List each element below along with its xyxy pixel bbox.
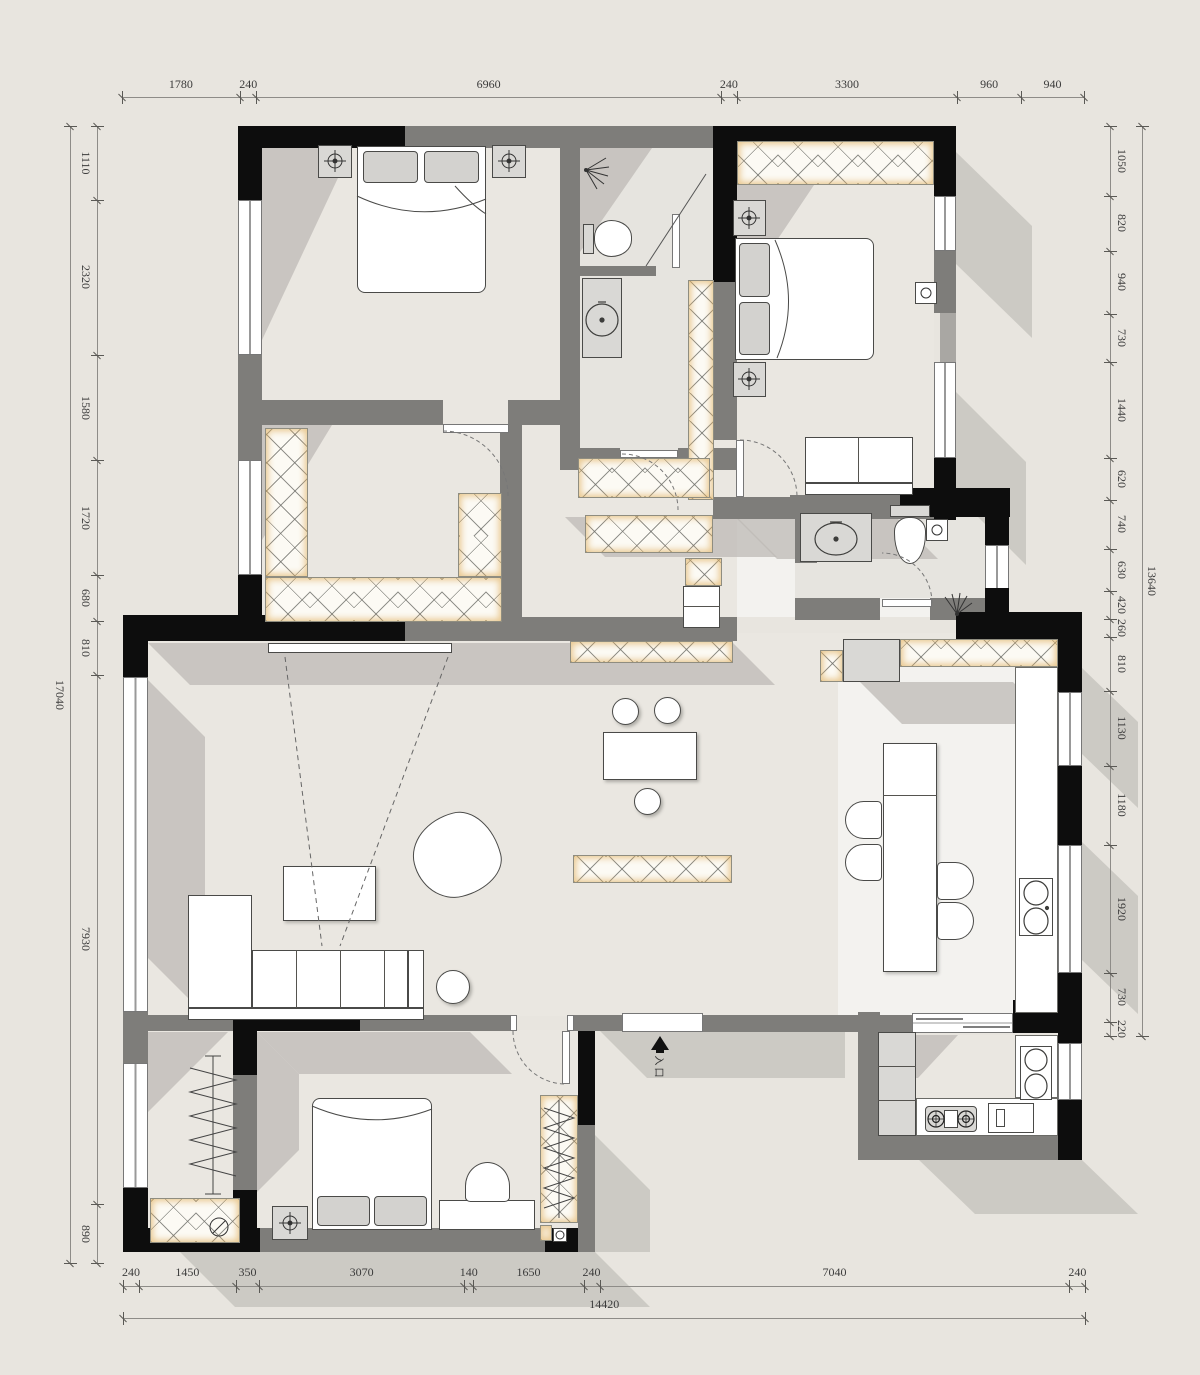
dim-line: [1110, 126, 1111, 1036]
floorplan-page: { "title": "apartment-floor-plan", "labe…: [0, 0, 1200, 1375]
dim-label: 1780: [169, 77, 193, 91]
dim-label: 240: [720, 77, 738, 91]
dim-label: 1180: [1115, 794, 1129, 818]
dim-label: 240: [583, 1265, 601, 1279]
dim-label: 810: [79, 639, 93, 657]
dim-label: 7930: [79, 927, 93, 951]
dim-line: [1142, 126, 1143, 1036]
dim-label: 730: [1115, 329, 1129, 347]
dim-label: 3300: [835, 77, 859, 91]
dim-total-label: 17040: [53, 680, 67, 710]
dim-label: 940: [1115, 273, 1129, 291]
dim-label: 140: [460, 1265, 478, 1279]
dim-label: 1920: [1115, 897, 1129, 921]
dim-label: 220: [1115, 1020, 1129, 1038]
dim-line: [70, 126, 71, 1263]
dim-label: 2320: [79, 265, 93, 289]
dim-label: 890: [79, 1225, 93, 1243]
dim-label: 6960: [477, 77, 501, 91]
dim-label: 960: [980, 77, 998, 91]
dim-line: [123, 1286, 1085, 1287]
dim-label: 260: [1115, 619, 1129, 637]
dim-label: 7040: [822, 1265, 846, 1279]
dim-label: 1050: [1115, 149, 1129, 173]
dim-label: 630: [1115, 561, 1129, 579]
dimension-rulers: 1780240696024033009609402401450350307014…: [0, 0, 1200, 1375]
dim-label: 240: [122, 1265, 140, 1279]
dim-label: 1130: [1115, 717, 1129, 741]
dim-label: 680: [79, 589, 93, 607]
dim-label: 1580: [79, 396, 93, 420]
dim-label: 810: [1115, 655, 1129, 673]
dim-label: 620: [1115, 470, 1129, 488]
dim-label: 240: [239, 77, 257, 91]
dim-label: 740: [1115, 515, 1129, 533]
dim-label: 1440: [1115, 398, 1129, 422]
dim-total-label: 13640: [1145, 566, 1159, 596]
dim-line: [122, 97, 1084, 98]
dim-label: 730: [1115, 988, 1129, 1006]
dim-line: [123, 1318, 1085, 1319]
dim-label: 240: [1068, 1265, 1086, 1279]
dim-label: 1720: [79, 506, 93, 530]
dim-label: 3070: [350, 1265, 374, 1279]
dim-line: [97, 126, 98, 1263]
dim-label: 940: [1044, 77, 1062, 91]
dim-label: 1650: [516, 1265, 540, 1279]
dim-total-label: 14420: [589, 1297, 619, 1311]
dim-label: 1110: [79, 151, 93, 174]
dim-label: 1450: [175, 1265, 199, 1279]
dim-label: 420: [1115, 596, 1129, 614]
dim-label: 820: [1115, 214, 1129, 232]
dim-label: 350: [238, 1265, 256, 1279]
